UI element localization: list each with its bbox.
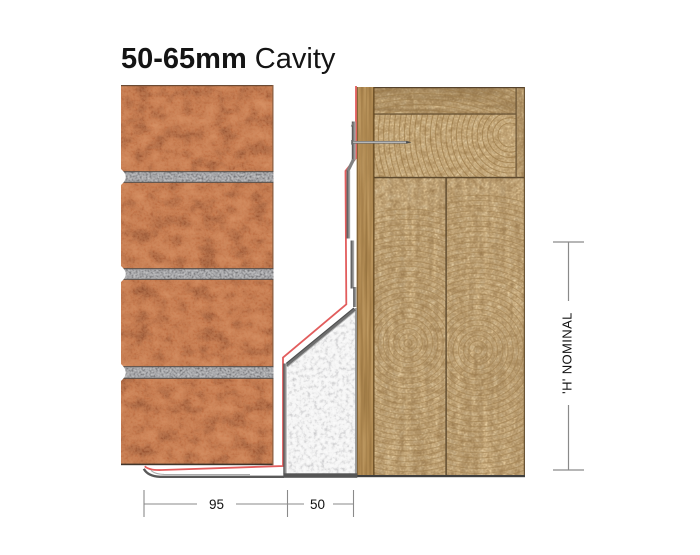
svg-text:95: 95 xyxy=(209,497,224,512)
svg-text:'H' NOMINAL: 'H' NOMINAL xyxy=(559,312,574,394)
svg-text:50-65mm Cavity: 50-65mm Cavity xyxy=(121,43,336,75)
svg-text:50: 50 xyxy=(310,497,325,512)
